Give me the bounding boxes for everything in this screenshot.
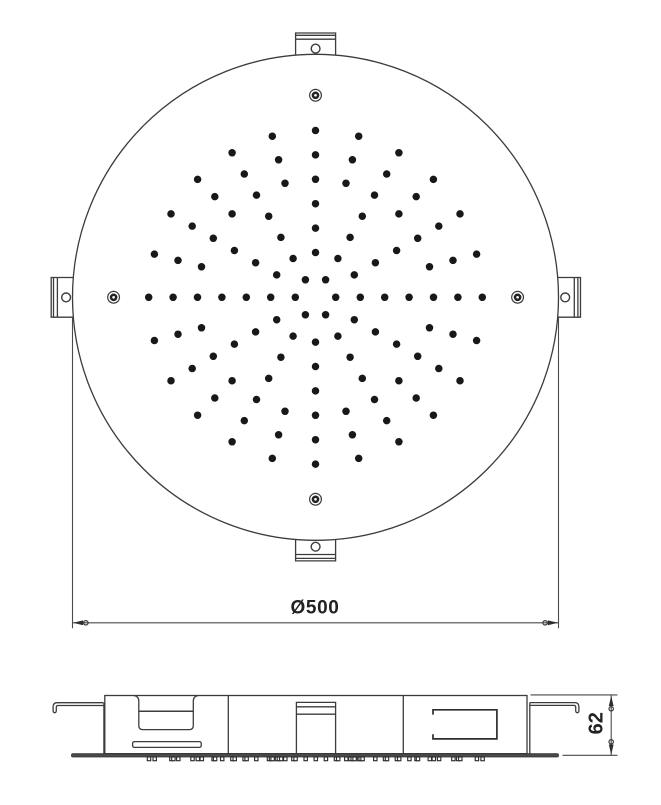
svg-text:62: 62 (586, 712, 608, 734)
svg-text:Ø500: Ø500 (291, 598, 340, 619)
